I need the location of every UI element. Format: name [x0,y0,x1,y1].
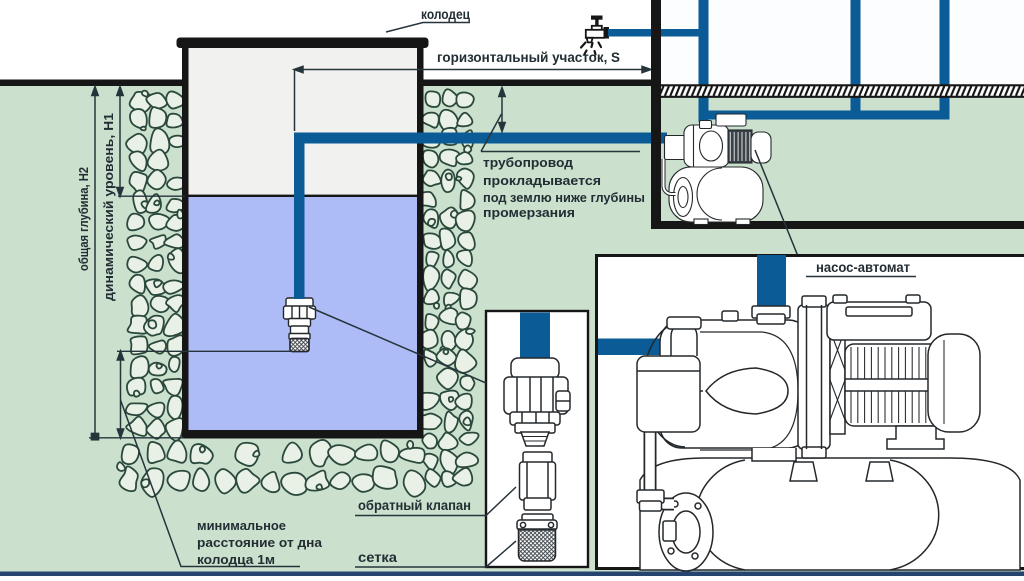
svg-text:обратный клапан: обратный клапан [358,498,471,513]
svg-text:колодец: колодец [421,7,471,22]
svg-text:трубопровод: трубопровод [483,155,574,170]
svg-text:горизонтальный участок, S: горизонтальный участок, S [437,50,620,65]
svg-text:сетка: сетка [358,550,398,565]
svg-text:динамический уровень, Н1: динамический уровень, Н1 [102,113,116,301]
svg-text:насос-автомат: насос-автомат [816,260,910,275]
svg-text:общая глубина, Н2: общая глубина, Н2 [77,167,91,271]
svg-text:промерзания: промерзания [483,205,575,220]
svg-text:колодца 1м: колодца 1м [197,552,275,567]
svg-text:под землю ниже глубины: под землю ниже глубины [483,190,645,205]
svg-text:минимальное: минимальное [197,518,286,533]
svg-text:расстояние от дна: расстояние от дна [197,535,323,550]
svg-text:прокладывается: прокладывается [483,173,601,188]
